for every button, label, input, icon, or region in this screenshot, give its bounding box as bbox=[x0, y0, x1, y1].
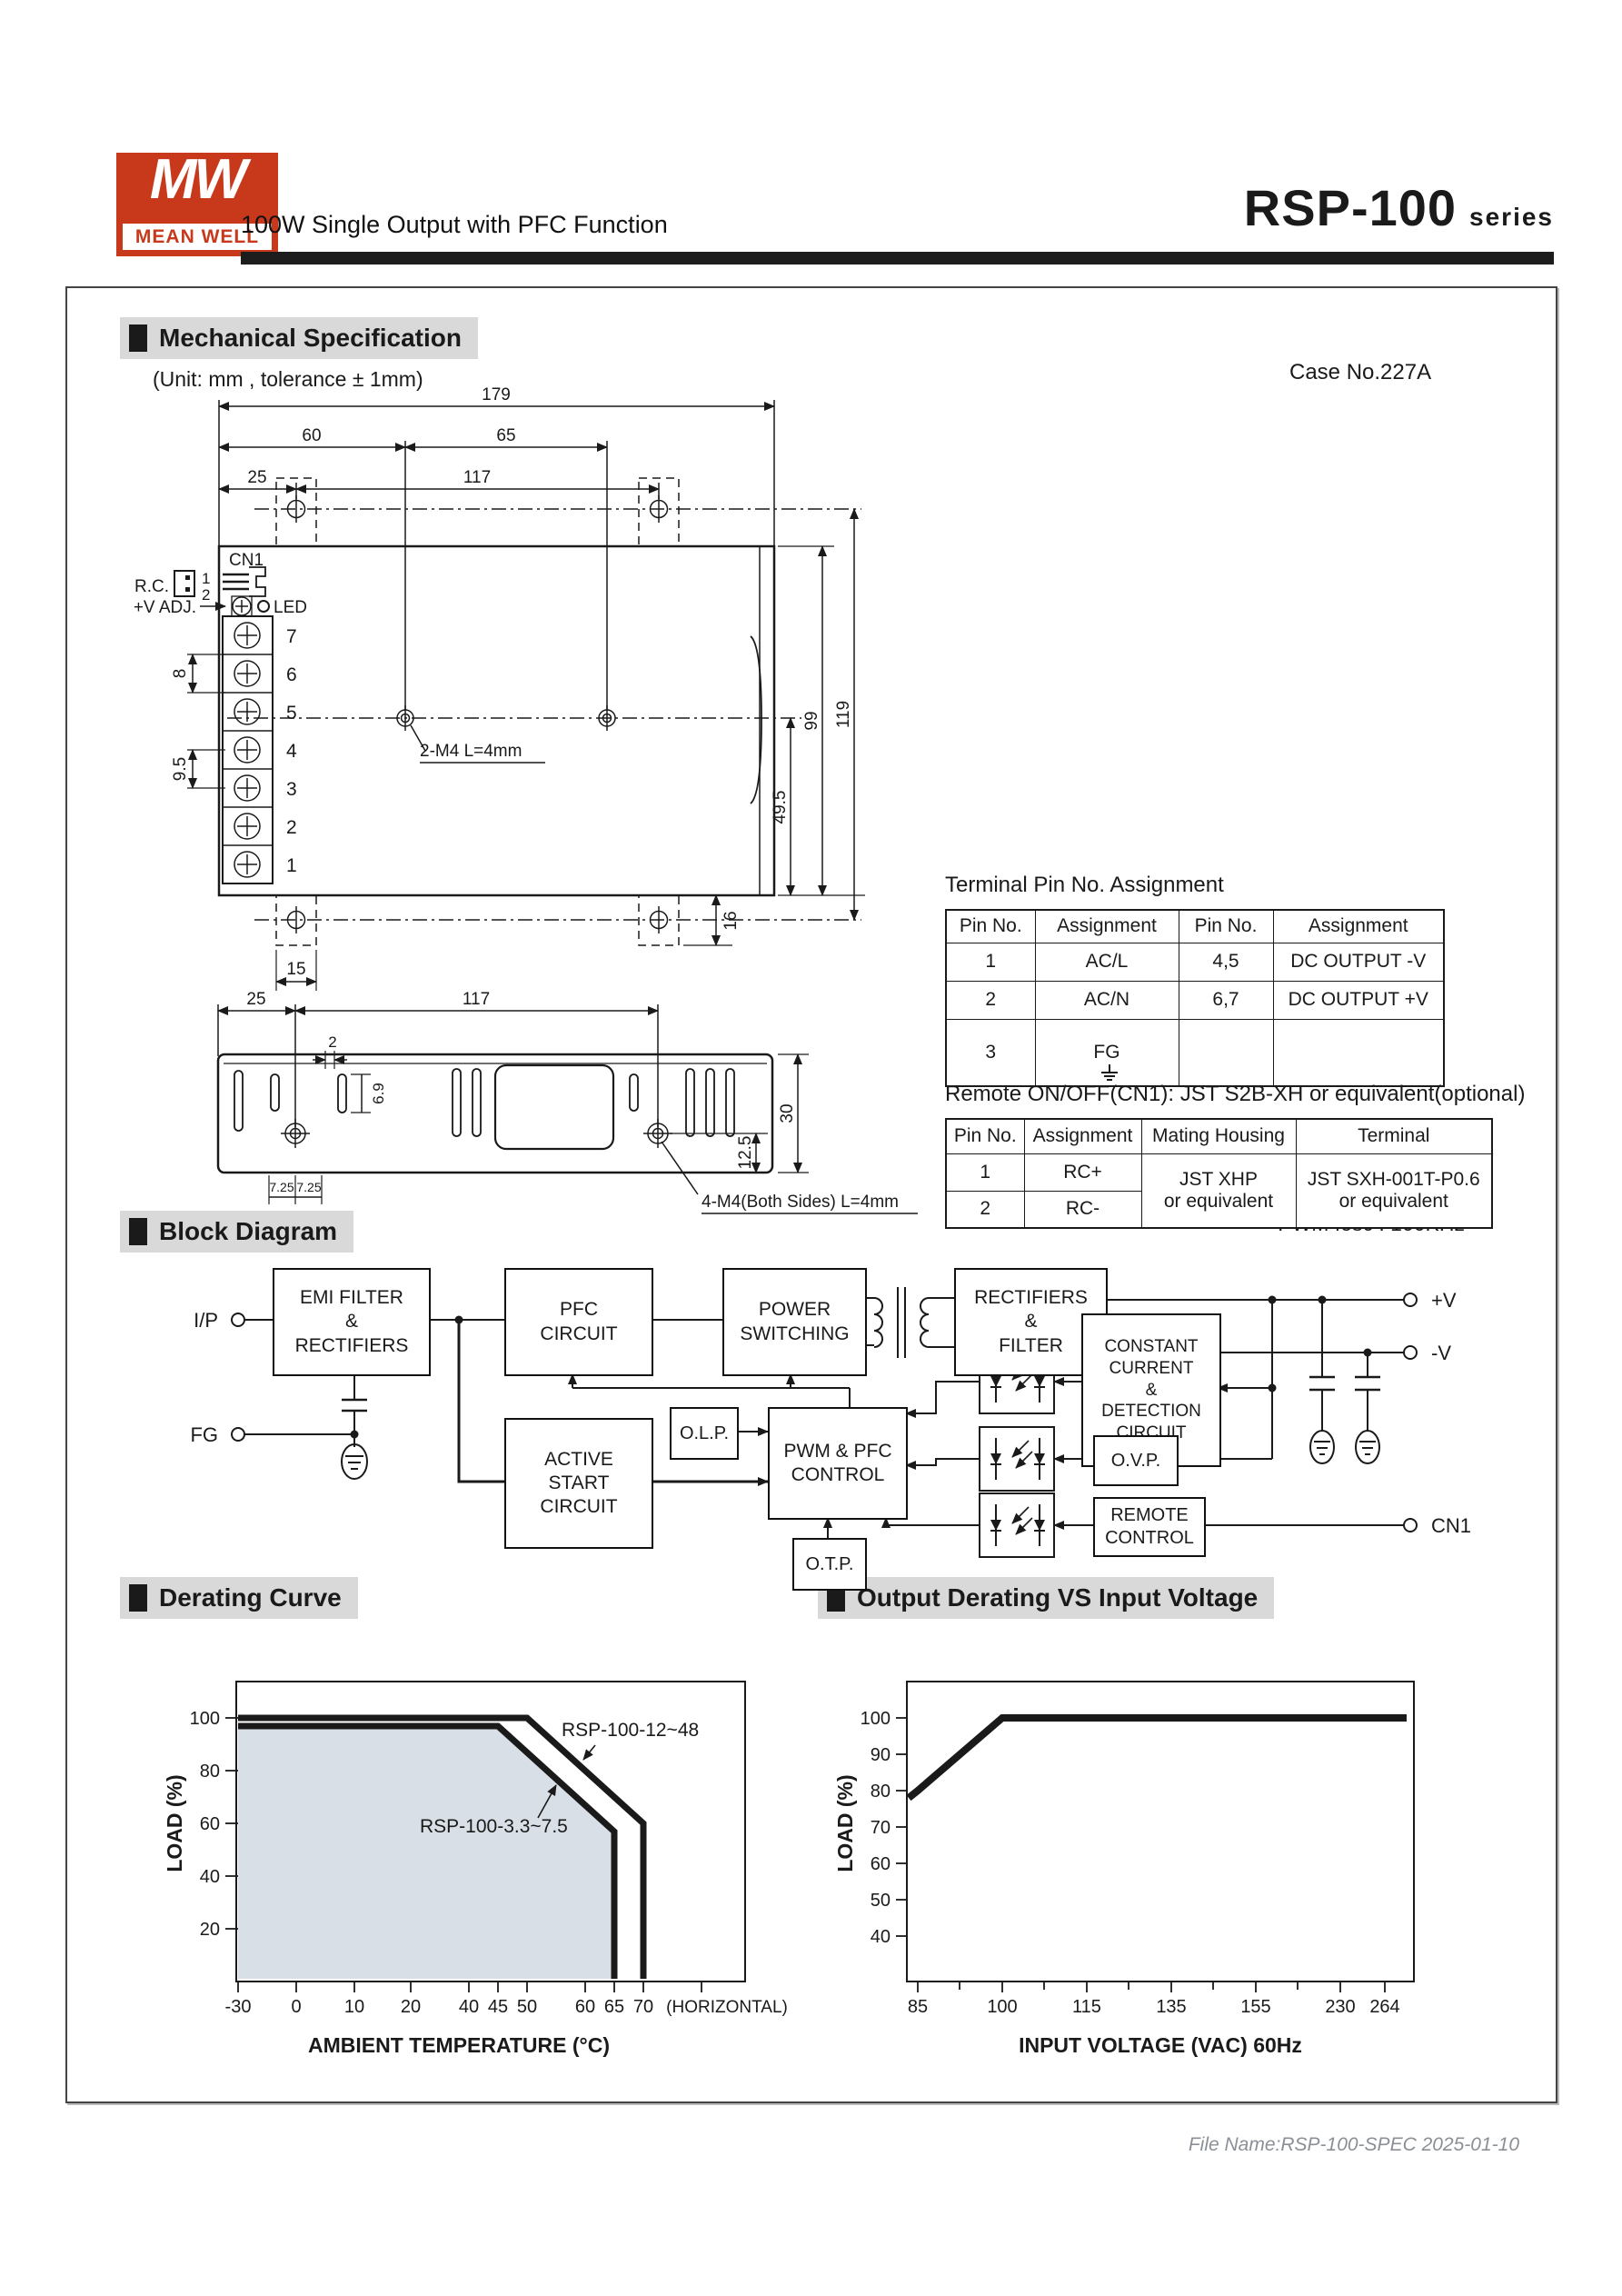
cell: RC- bbox=[1024, 1191, 1141, 1228]
svg-text:60: 60 bbox=[575, 1997, 595, 2017]
fg-label: FG bbox=[1093, 1042, 1119, 1063]
iv-yticks: 100 90 80 70 60 50 40 bbox=[861, 1709, 891, 1947]
cell: 3 bbox=[946, 1019, 1035, 1086]
block-remote-control: REMOTE CONTROL bbox=[1093, 1497, 1206, 1557]
col-header: Pin No. bbox=[946, 1119, 1024, 1153]
svg-text:264: 264 bbox=[1369, 1997, 1399, 2017]
terminal-vminus: -V bbox=[1431, 1342, 1451, 1364]
col-header: Terminal bbox=[1296, 1119, 1492, 1153]
svg-text:90: 90 bbox=[871, 1745, 891, 1765]
annotation-rsp-12-48: RSP-100-12~48 bbox=[562, 1720, 699, 1741]
output-capacitor-icon bbox=[1309, 1300, 1335, 1463]
svg-text:70: 70 bbox=[633, 1997, 653, 2017]
col-header: Assignment bbox=[1035, 910, 1179, 943]
svg-text:20: 20 bbox=[200, 1920, 220, 1940]
cell: 1 bbox=[946, 1153, 1024, 1191]
svg-text:85: 85 bbox=[908, 1997, 928, 2017]
terminal-ip: I/P bbox=[194, 1309, 218, 1332]
dim-99: 99 bbox=[802, 711, 821, 730]
cell: AC/L bbox=[1035, 943, 1179, 981]
dim-9-5: 9.5 bbox=[171, 757, 190, 781]
svg-text:70: 70 bbox=[871, 1818, 891, 1838]
svg-text:5: 5 bbox=[286, 703, 297, 724]
footer-file-info: File Name:RSP-100-SPEC 2025-01-10 bbox=[945, 2134, 1519, 2156]
cell: AC/N bbox=[1035, 981, 1179, 1019]
side-dim-12-5: 12.5 bbox=[736, 1136, 755, 1170]
dim-49-5: 49.5 bbox=[771, 791, 790, 824]
cell: DC OUTPUT +V bbox=[1273, 981, 1444, 1019]
svg-text:50: 50 bbox=[517, 1997, 537, 2017]
col-header: Pin No. bbox=[1179, 910, 1273, 943]
cell: 1 bbox=[946, 943, 1035, 981]
terminal-vplus: +V bbox=[1431, 1289, 1457, 1312]
svg-text:0: 0 bbox=[291, 1997, 301, 2017]
dim-65: 65 bbox=[496, 426, 515, 445]
table-row: 1 RC+ JST XHP or equivalent JST SXH-001T… bbox=[946, 1153, 1492, 1191]
led-icon bbox=[258, 601, 269, 612]
derating-yticks: 100 80 60 40 20 bbox=[190, 1709, 220, 1940]
block-power-switching: POWER SWITCHING bbox=[722, 1268, 867, 1376]
datasheet-page: MW MEAN WELL 100W Single Output with PFC… bbox=[0, 0, 1622, 2296]
col-header: Mating Housing bbox=[1141, 1119, 1296, 1153]
cell-mating-housing: JST XHP or equivalent bbox=[1141, 1153, 1296, 1228]
side-dim-7-25a: 7.25 bbox=[269, 1180, 294, 1194]
side-dim-7-25b: 7.25 bbox=[296, 1180, 321, 1194]
optocoupler-icon bbox=[980, 1427, 1054, 1491]
svg-text:80: 80 bbox=[871, 1782, 891, 1802]
cell-fg: FG bbox=[1035, 1019, 1179, 1086]
dim-15: 15 bbox=[286, 960, 305, 979]
side-dim-25: 25 bbox=[246, 990, 265, 1009]
col-header: Assignment bbox=[1273, 910, 1444, 943]
rc-pin2: 2 bbox=[202, 586, 210, 604]
cell: DC OUTPUT -V bbox=[1273, 943, 1444, 981]
horizontal-note: (HORIZONTAL) bbox=[666, 1998, 788, 2017]
block-otp: O.T.P. bbox=[792, 1538, 867, 1591]
derating-chart: 100 80 60 40 20 -30 0 10 20 40 bbox=[163, 1682, 788, 2057]
derating-xlabel: AMBIENT TEMPERATURE (°C) bbox=[308, 2033, 610, 2057]
mech-side-view: 25 117 2 bbox=[218, 990, 918, 1213]
cell: RC+ bbox=[1024, 1153, 1141, 1191]
label-rc: R.C. bbox=[134, 577, 169, 596]
earth-ground-icon bbox=[1100, 1064, 1119, 1083]
terminal-pin-table: Pin No. Assignment Pin No. Assignment 1 … bbox=[945, 909, 1445, 1087]
table-row: 1 AC/L 4,5 DC OUTPUT -V bbox=[946, 943, 1444, 981]
cell bbox=[1179, 1019, 1273, 1086]
table-row: 2 AC/N 6,7 DC OUTPUT +V bbox=[946, 981, 1444, 1019]
col-header: Assignment bbox=[1024, 1119, 1141, 1153]
cell: 6,7 bbox=[1179, 981, 1273, 1019]
svg-text:155: 155 bbox=[1240, 1997, 1270, 2017]
terminal-screws bbox=[234, 623, 260, 877]
derating-xticks: -30 0 10 20 40 45 50 60 65 70 (HORIZONTA… bbox=[225, 1997, 788, 2017]
svg-text:2: 2 bbox=[286, 817, 297, 838]
svg-text:60: 60 bbox=[200, 1814, 220, 1834]
svg-text:100: 100 bbox=[861, 1709, 891, 1729]
cell: 2 bbox=[946, 1191, 1024, 1228]
label-2m4: 2-M4 L=4mm bbox=[420, 742, 522, 761]
side-dim-2: 2 bbox=[328, 1033, 336, 1051]
remote-table-title: Remote ON/OFF(CN1): JST S2B-XH or equiva… bbox=[945, 1082, 1525, 1107]
svg-text:-30: -30 bbox=[225, 1997, 252, 2017]
iv-xlabel: INPUT VOLTAGE (VAC) 60Hz bbox=[1019, 2033, 1302, 2057]
svg-text:100: 100 bbox=[190, 1709, 220, 1729]
label-vadj: +V ADJ. bbox=[134, 598, 196, 617]
derating-ylabel: LOAD (%) bbox=[163, 1774, 186, 1872]
svg-text:3: 3 bbox=[286, 779, 297, 800]
optocoupler-icon bbox=[980, 1493, 1054, 1557]
svg-text:65: 65 bbox=[604, 1997, 624, 2017]
dim-16: 16 bbox=[721, 911, 741, 930]
svg-text:20: 20 bbox=[401, 1997, 421, 2017]
block-ovp: O.V.P. bbox=[1093, 1435, 1179, 1486]
rc-pin1: 1 bbox=[202, 570, 210, 587]
side-label-4m4: 4-M4(Both Sides) L=4mm bbox=[702, 1193, 899, 1212]
iv-ylabel: LOAD (%) bbox=[833, 1774, 857, 1872]
svg-text:100: 100 bbox=[987, 1997, 1017, 2017]
label-led: LED bbox=[274, 598, 307, 617]
block-pwm-pfc-control: PWM & PFC CONTROL bbox=[768, 1407, 908, 1520]
svg-text:60: 60 bbox=[871, 1854, 891, 1874]
svg-text:40: 40 bbox=[200, 1867, 220, 1887]
block-emi-filter: EMI FILTER & RECTIFIERS bbox=[273, 1268, 431, 1376]
remote-onoff-table: Pin No. Assignment Mating Housing Termin… bbox=[945, 1118, 1493, 1229]
dim-117: 117 bbox=[463, 468, 491, 487]
terminal-table-title: Terminal Pin No. Assignment bbox=[945, 873, 1224, 898]
svg-text:80: 80 bbox=[200, 1762, 220, 1782]
svg-text:4: 4 bbox=[286, 741, 297, 762]
svg-text:7: 7 bbox=[286, 626, 297, 647]
dim-60: 60 bbox=[302, 426, 321, 445]
svg-text:40: 40 bbox=[459, 1997, 479, 2017]
svg-text:230: 230 bbox=[1325, 1997, 1355, 2017]
svg-text:115: 115 bbox=[1072, 1997, 1101, 2017]
side-dim-117: 117 bbox=[463, 990, 490, 1009]
svg-text:1: 1 bbox=[286, 855, 297, 876]
cell: 2 bbox=[946, 981, 1035, 1019]
block-pfc-circuit: PFC CIRCUIT bbox=[504, 1268, 653, 1376]
side-dim-6-9: 6.9 bbox=[370, 1083, 387, 1104]
terminal-numbers: 7 6 5 4 3 2 1 bbox=[286, 626, 297, 876]
svg-text:6: 6 bbox=[286, 664, 297, 685]
svg-text:135: 135 bbox=[1156, 1997, 1186, 2017]
dim-25: 25 bbox=[247, 468, 266, 487]
block-active-start: ACTIVE START CIRCUIT bbox=[504, 1418, 653, 1549]
annotation-rsp-3-3-7-5: RSP-100-3.3~7.5 bbox=[420, 1816, 568, 1837]
input-voltage-chart: 100 90 80 70 60 50 40 85 100 115 bbox=[833, 1682, 1414, 2057]
curve-load-vs-input bbox=[909, 1718, 1407, 1798]
col-header: Pin No. bbox=[946, 910, 1035, 943]
output-capacitor-icon bbox=[1355, 1353, 1380, 1463]
side-dim-30: 30 bbox=[778, 1103, 797, 1123]
terminal-cn1: CN1 bbox=[1431, 1514, 1471, 1537]
dim-8: 8 bbox=[171, 669, 190, 679]
svg-text:50: 50 bbox=[871, 1891, 891, 1911]
mech-top-view: 179 60 65 25 117 bbox=[134, 385, 865, 991]
svg-text:40: 40 bbox=[871, 1927, 891, 1947]
cell-terminal: JST SXH-001T-P0.6 or equivalent bbox=[1296, 1153, 1492, 1228]
terminal-fg: FG bbox=[190, 1423, 218, 1446]
dim-119: 119 bbox=[834, 701, 853, 728]
table-row: 3 FG bbox=[946, 1019, 1444, 1086]
cell: 4,5 bbox=[1179, 943, 1273, 981]
dim-179: 179 bbox=[482, 385, 511, 404]
svg-text:10: 10 bbox=[344, 1997, 364, 2017]
cell bbox=[1273, 1019, 1444, 1086]
block-olp: O.L.P. bbox=[670, 1407, 739, 1460]
svg-text:45: 45 bbox=[488, 1997, 508, 2017]
iv-xticks: 85 100 115 135 155 230 264 bbox=[908, 1997, 1400, 2017]
earth-ground-icon bbox=[342, 1444, 367, 1479]
